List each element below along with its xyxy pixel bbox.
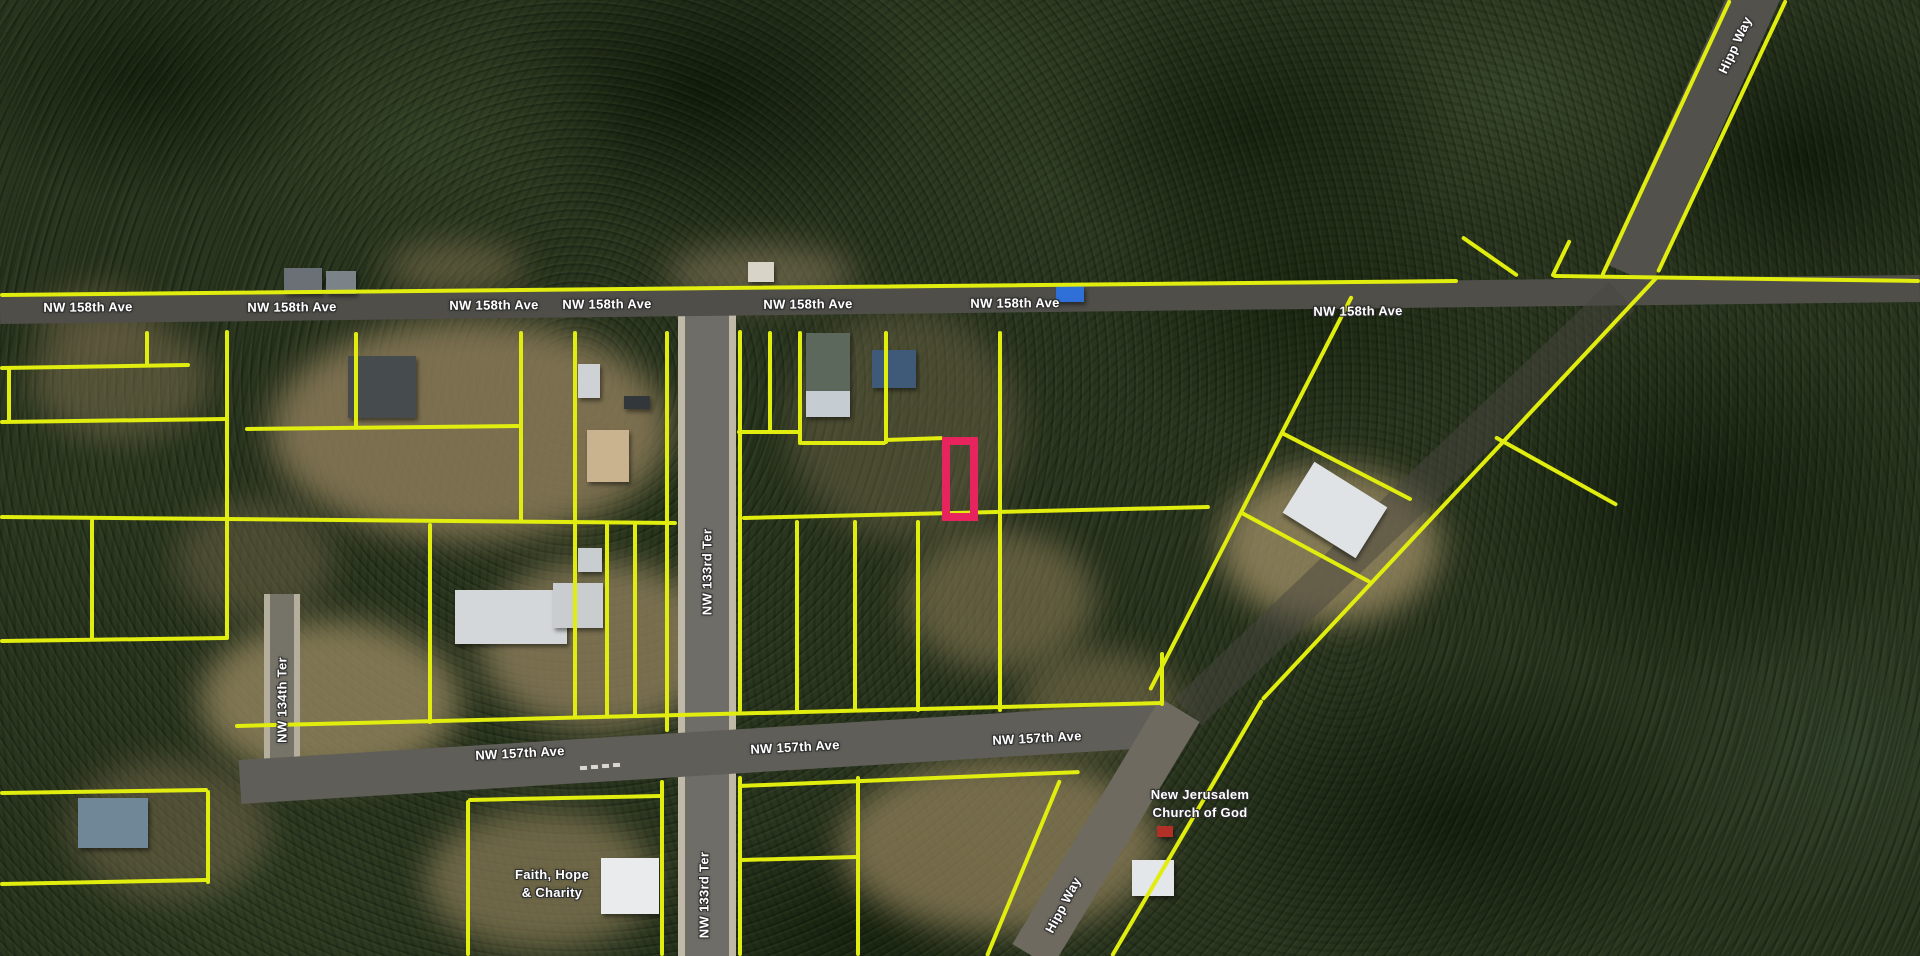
parcel-line — [737, 430, 800, 434]
parcel-line — [7, 368, 11, 422]
building — [1157, 826, 1173, 837]
road-label-nw-158th-ave: NW 158th Ave — [562, 296, 651, 312]
parcel-line — [0, 363, 190, 370]
parcel-line — [1461, 235, 1519, 277]
parcel-line — [886, 436, 943, 442]
building — [78, 798, 148, 848]
parcel-line — [768, 331, 772, 433]
parcel-line — [795, 520, 799, 712]
place-label-line2: & Charity — [515, 884, 589, 902]
building — [748, 262, 774, 282]
building — [872, 350, 916, 388]
parcel-line — [0, 878, 208, 886]
crosswalk-dash — [580, 766, 587, 770]
road-label-nw-158th-ave: NW 158th Ave — [449, 297, 538, 313]
parcel-line — [998, 331, 1002, 712]
parcel-line — [740, 855, 858, 862]
parcel-line — [573, 331, 577, 522]
crosswalk-dash — [602, 764, 609, 768]
building — [455, 590, 567, 644]
road-label-nw-158th-ave: NW 158th Ave — [247, 299, 336, 315]
parcel-line — [0, 636, 227, 643]
parcel-line — [665, 331, 669, 732]
building — [601, 858, 659, 914]
parcel-line — [225, 330, 229, 640]
place-label-line1: Faith, Hope — [515, 866, 589, 884]
building — [624, 396, 650, 409]
parcel-line — [884, 331, 888, 444]
road-hipp-way-north — [1606, 0, 1781, 284]
parcel-line — [468, 794, 662, 802]
parcel-line — [738, 776, 742, 956]
parcel-line — [660, 780, 664, 956]
parcel-line — [0, 788, 208, 795]
building — [578, 364, 600, 398]
place-label-line2: Church of God — [1151, 804, 1250, 822]
parcel-line — [519, 331, 523, 522]
building — [578, 548, 602, 572]
road-label-nw-158th-ave: NW 158th Ave — [970, 295, 1059, 311]
parcel-line — [853, 520, 857, 712]
building — [553, 583, 603, 628]
road-label-nw-133rd-ter: NW 133rd Ter — [700, 529, 715, 615]
building — [806, 391, 850, 417]
parcel-line — [605, 523, 609, 718]
parcel-line — [573, 523, 577, 718]
parcel-line — [245, 424, 520, 431]
clearing — [385, 242, 525, 294]
place-label-line1: New Jerusalem — [1151, 786, 1250, 804]
parcel-line — [428, 523, 432, 724]
place-label: New JerusalemChurch of God — [1151, 786, 1250, 822]
parcel-line — [738, 330, 742, 712]
road-label-nw-158th-ave: NW 158th Ave — [1313, 303, 1402, 319]
parcel-line — [145, 331, 149, 367]
building — [1056, 286, 1084, 302]
building — [1132, 860, 1174, 896]
parcel-line — [633, 523, 637, 718]
selected-parcel-highlight[interactable] — [942, 437, 978, 521]
parcel-line — [354, 332, 358, 428]
road-label-nw-133rd-ter: NW 133rd Ter — [697, 852, 712, 938]
parcel-line — [90, 517, 94, 641]
parcel-line — [798, 331, 802, 445]
road-label-nw-158th-ave: NW 158th Ave — [763, 296, 852, 312]
road-label-nw-158th-ave: NW 158th Ave — [43, 299, 132, 315]
parcel-line — [1550, 239, 1572, 278]
crosswalk-dash — [613, 763, 620, 767]
crosswalk-dash — [591, 765, 598, 769]
parcel-line — [916, 520, 920, 712]
building — [806, 333, 850, 391]
building — [348, 356, 416, 418]
parcel-line — [466, 800, 470, 956]
parcel-line — [740, 770, 1080, 788]
parcel-line — [206, 790, 210, 884]
parcel-line — [800, 441, 886, 445]
road-label-nw-134th-ter: NW 134th Ter — [275, 657, 290, 743]
parcel-line — [0, 417, 227, 424]
place-label: Faith, Hope& Charity — [515, 866, 589, 902]
parcel-line — [1494, 435, 1618, 506]
satellite-map-canvas[interactable]: NW 158th AveNW 158th AveNW 158th AveNW 1… — [0, 0, 1920, 956]
parcel-line — [856, 776, 860, 956]
building — [587, 430, 629, 482]
